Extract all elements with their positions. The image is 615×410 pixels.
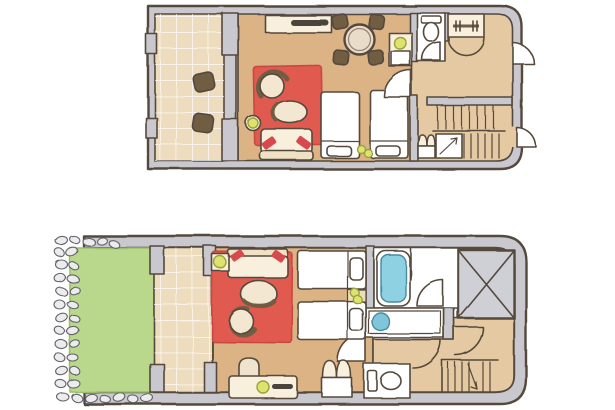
table-inner-ring <box>348 28 370 50</box>
floor-cushion <box>192 71 215 93</box>
dining-chair <box>332 49 348 64</box>
pillow <box>376 146 400 156</box>
floor-plan-page <box>0 0 615 410</box>
stairs-wall <box>428 98 513 106</box>
toilet-tank <box>368 371 377 391</box>
floor-lamp <box>248 118 258 128</box>
closet-box <box>418 146 435 158</box>
side-table-lamp <box>214 256 226 268</box>
floor-plan-canvas <box>0 0 615 410</box>
toilet <box>424 23 439 42</box>
dining-chair <box>368 14 385 30</box>
wc-room <box>417 13 445 61</box>
wall-stub <box>204 362 216 392</box>
closet-arch <box>337 361 351 378</box>
wall-stub <box>150 246 164 274</box>
pillow <box>327 146 351 156</box>
table-lamp <box>394 37 406 49</box>
pillow <box>350 258 363 280</box>
lower-floor-plan <box>53 235 526 404</box>
bedroom-living-area <box>212 249 366 398</box>
sofa-back <box>260 151 313 160</box>
upper-floor-plan <box>146 6 536 169</box>
lamp-cabinet <box>389 33 412 66</box>
twin-bed <box>321 92 359 158</box>
entrance-door-swing <box>513 43 534 64</box>
tv <box>290 19 328 25</box>
cabinet-door <box>391 51 410 65</box>
closet-arch <box>323 361 337 378</box>
desk-tray <box>272 384 293 389</box>
floor-cushion <box>192 113 214 134</box>
armchair-seat <box>229 309 253 333</box>
sofa <box>260 129 313 160</box>
wc-room <box>364 364 410 398</box>
living-hall-wall-bottom <box>410 96 418 161</box>
twin-bed <box>298 251 366 289</box>
bathroom <box>366 248 458 338</box>
side-door-swing <box>517 128 536 147</box>
armchair <box>229 308 254 334</box>
toilet <box>381 373 401 390</box>
pillow <box>350 309 363 331</box>
armchair <box>273 101 307 123</box>
shaft <box>458 250 514 318</box>
wall-stub <box>150 364 164 392</box>
garden-lawn <box>70 248 154 392</box>
closet-box <box>322 378 352 397</box>
closet-arch <box>418 135 427 146</box>
closet-arch <box>427 135 435 146</box>
armchair-seat <box>260 74 284 98</box>
terrace-divider-wall-top <box>222 13 238 55</box>
hall-closet <box>418 135 435 158</box>
wall-stub <box>146 34 157 54</box>
wall-stub <box>146 118 157 138</box>
understair-storage <box>436 134 462 158</box>
nightstand-lamp <box>364 149 372 157</box>
armchair <box>241 281 277 307</box>
terrace-divider-wall-bottom <box>222 119 238 161</box>
dining-chair <box>367 49 384 65</box>
nightstand-lamp <box>354 296 362 304</box>
sink <box>373 313 390 331</box>
desk-lamp <box>257 381 269 393</box>
dining-chair <box>331 13 348 29</box>
twin-bed <box>298 302 366 340</box>
vanity-hall-wall <box>444 306 454 340</box>
twin-bed <box>370 90 408 158</box>
sofa <box>228 249 288 278</box>
bathtub <box>381 255 406 302</box>
